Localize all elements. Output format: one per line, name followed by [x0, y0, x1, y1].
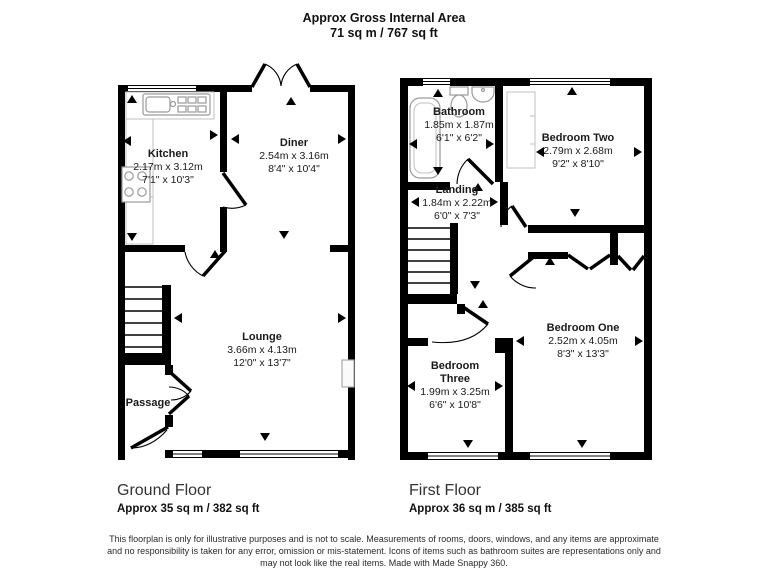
room-label-kitchen: Kitchen 2.17m x 3.12m 7'1" x 10'3"	[133, 148, 202, 187]
radiator-icon	[342, 360, 354, 387]
header-title: Approx Gross Internal Area	[0, 11, 768, 26]
door-arc	[510, 255, 536, 288]
door-arc	[169, 373, 191, 414]
first-floor-caption: First Floor	[409, 482, 481, 500]
wardrobe-icon	[507, 92, 535, 168]
room-label-landing: Landing 1.84m x 2.22m 6'0" x 7'3"	[422, 184, 491, 223]
door-arc	[223, 173, 246, 208]
ground-floor-area: Approx 35 sq m / 382 sq ft	[117, 503, 260, 515]
first-floor-area: Approx 36 sq m / 385 sq ft	[409, 503, 552, 515]
door-arc	[185, 250, 226, 276]
room-label-bathroom: Bathroom 1.85m x 1.87m 6'1" x 6'2"	[424, 106, 493, 145]
stairs-icon	[125, 287, 162, 347]
room-label-bedroom-three: Bedroom Three 1.99m x 3.25m 6'6" x 10'8"	[419, 360, 491, 412]
disclaimer-line-1: This floorplan is only for illustrative …	[0, 533, 768, 545]
basin-icon	[472, 87, 494, 102]
room-label-bedroom-one: Bedroom One 2.52m x 4.05m 8'3" x 13'3"	[547, 322, 620, 361]
disclaimer-line-3: may not look like the real items. Made w…	[0, 557, 768, 569]
room-label-bedroom-two: Bedroom Two 2.79m x 2.68m 9'2" x 8'10"	[542, 132, 615, 171]
first-floor-plan: Bathroom 1.85m x 1.87m 6'1" x 6'2" Bedro…	[400, 56, 652, 460]
ground-floor-plan: Kitchen 2.17m x 3.12m 7'1" x 10'3" Diner…	[115, 57, 365, 460]
room-label-diner: Diner 2.54m x 3.16m 8'4" x 10'4"	[259, 137, 328, 176]
header-subtitle: 71 sq m / 767 sq ft	[0, 26, 768, 41]
disclaimer: This floorplan is only for illustrative …	[0, 533, 768, 569]
cupboard-doors	[568, 255, 644, 270]
stairs-icon	[408, 228, 450, 283]
floorplan-page: Approx Gross Internal Area 71 sq m / 767…	[0, 0, 768, 576]
disclaimer-line-2: and no responsibility is taken for any e…	[0, 545, 768, 557]
room-label-lounge: Lounge 3.66m x 4.13m 12'0" x 13'7"	[227, 331, 296, 370]
room-label-passage: Passage	[126, 397, 171, 410]
french-doors	[252, 64, 310, 87]
door-arc	[457, 159, 493, 184]
gross-internal-area-header: Approx Gross Internal Area 71 sq m / 767…	[0, 11, 768, 41]
ground-floor-caption: Ground Floor	[117, 482, 211, 500]
entrance-door	[131, 427, 168, 448]
sink-icon	[143, 94, 210, 115]
